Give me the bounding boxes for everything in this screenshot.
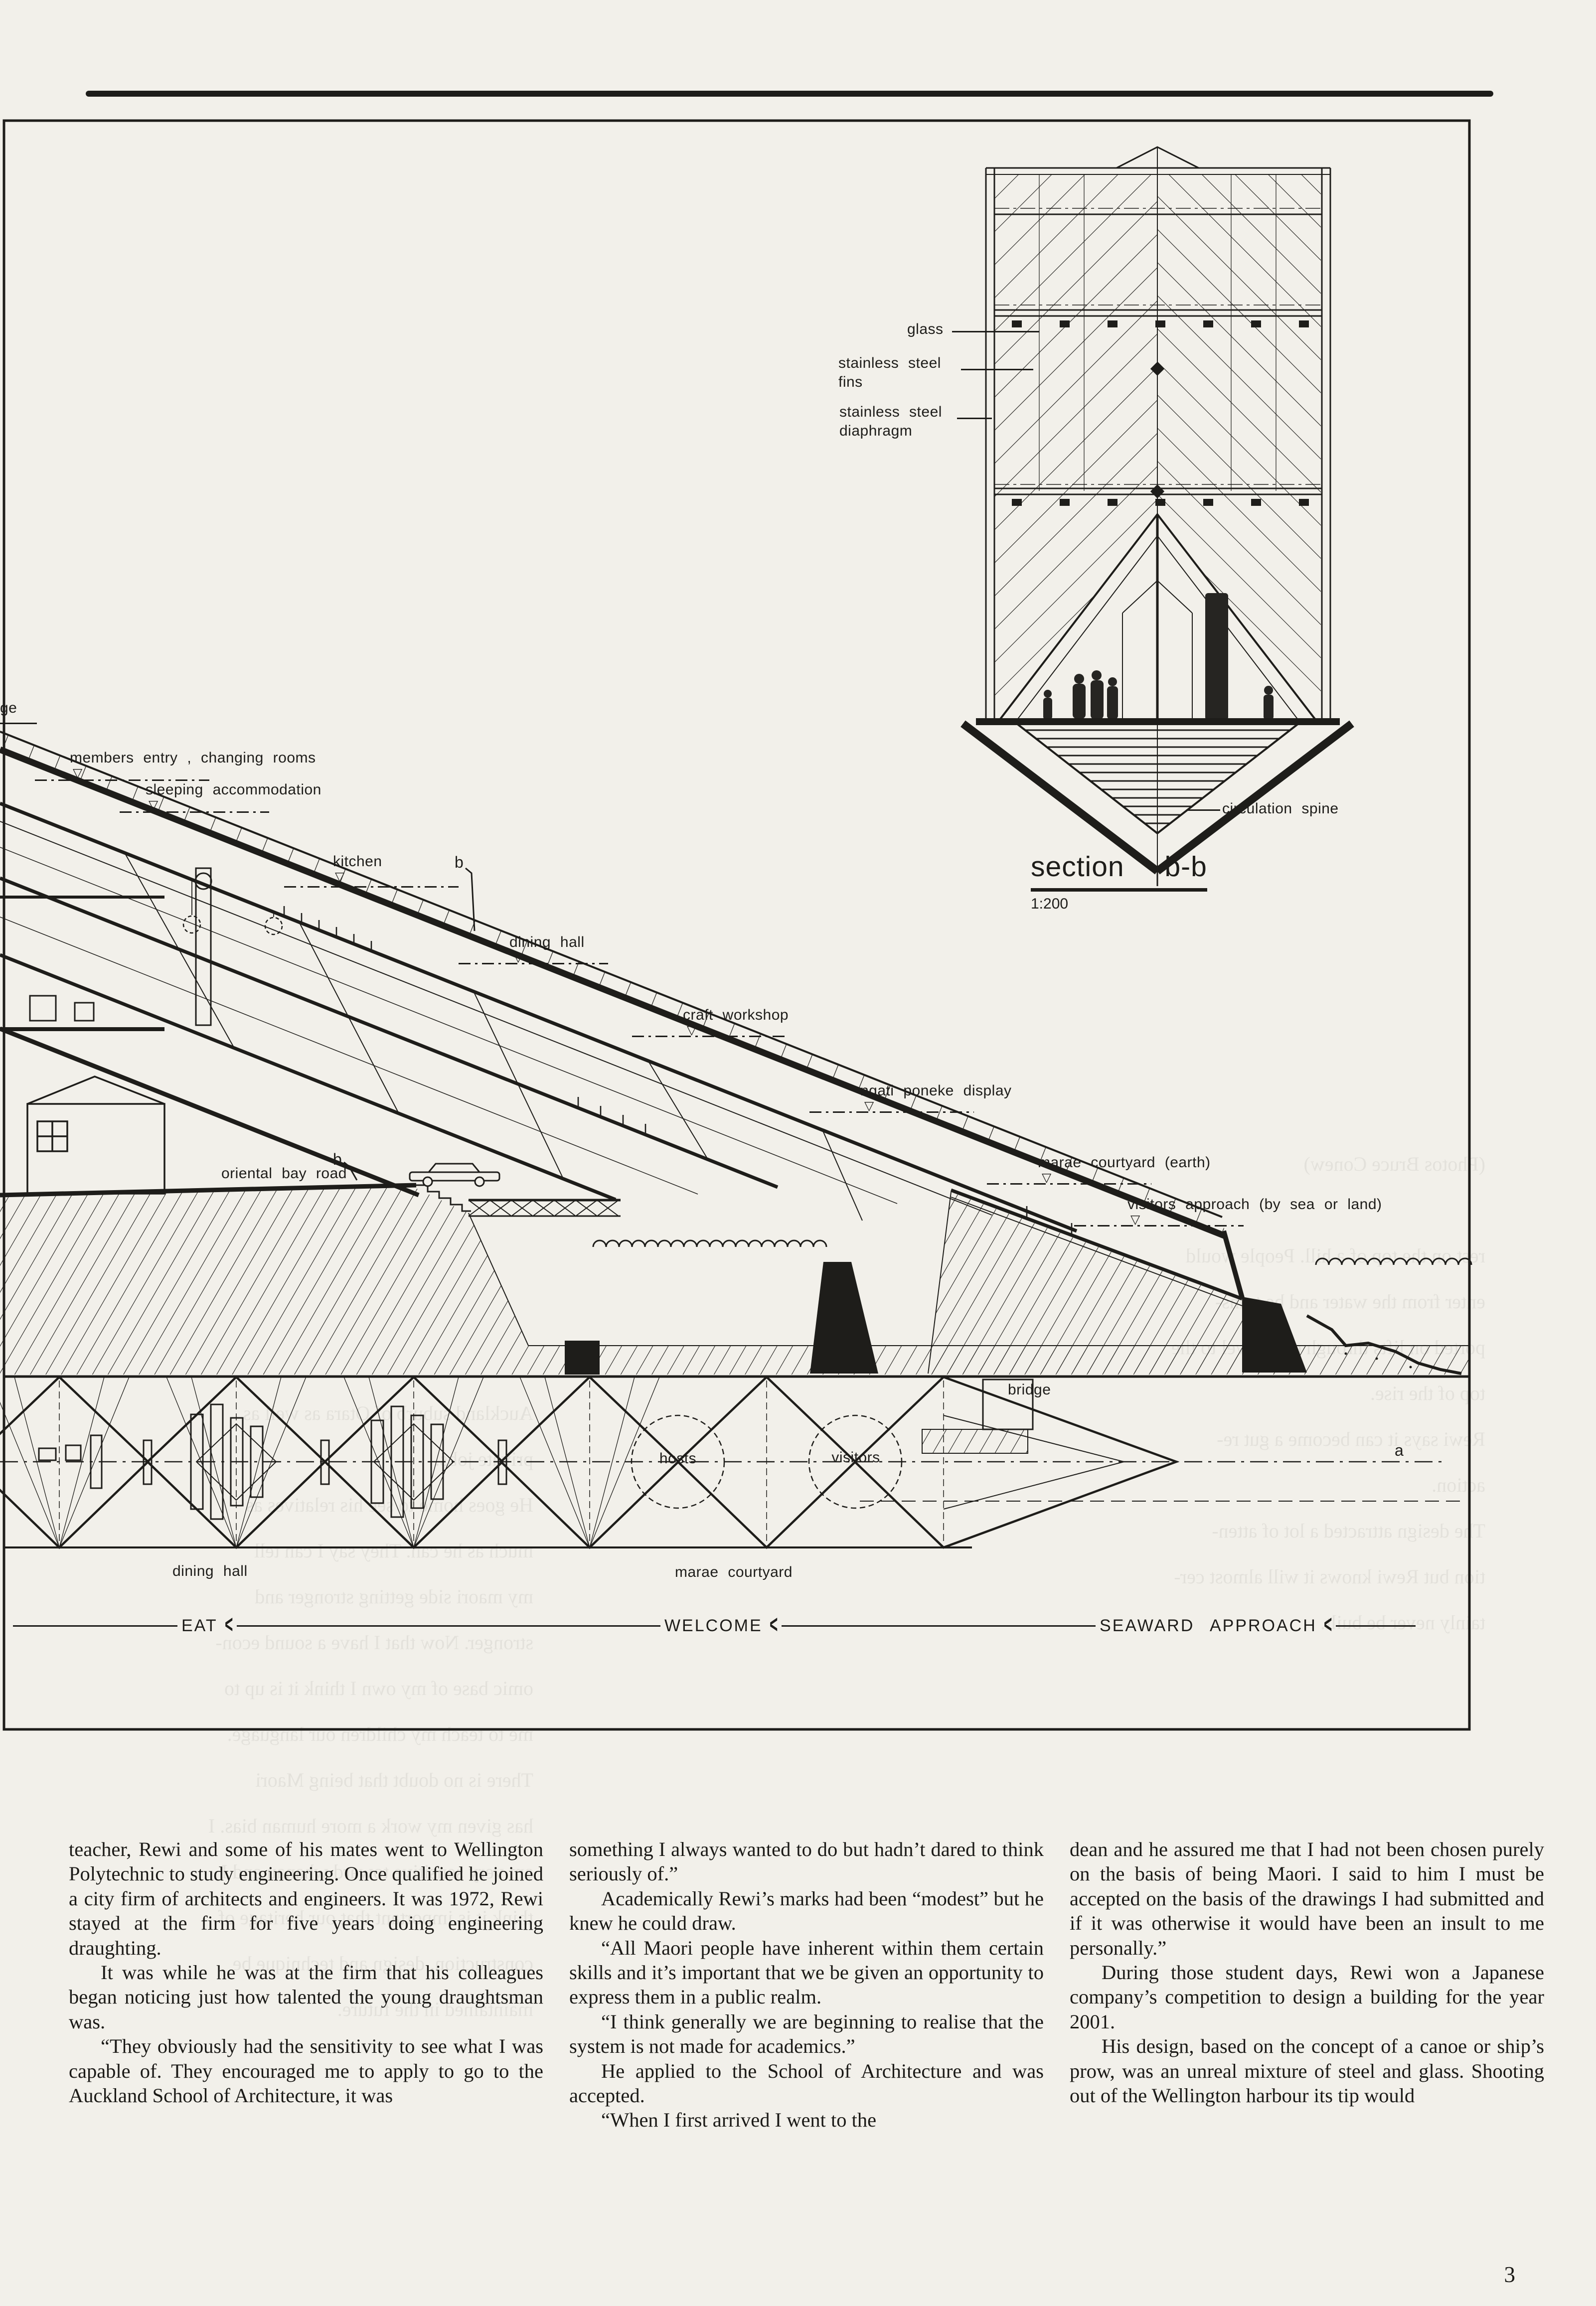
label-marae-courtyard-earth: marae courtyard (earth) <box>1038 1154 1211 1171</box>
label-stainless-steel-fins: stainless steel <box>838 355 941 372</box>
datum-triangle-icon: ▽ <box>1130 1213 1140 1226</box>
datum-line <box>284 886 459 888</box>
paragraph: “All Maori people have inherent within t… <box>569 1936 1044 2009</box>
datum-line <box>459 963 608 964</box>
leader-line <box>961 369 1033 370</box>
arrow-line <box>237 1625 660 1627</box>
datum-triangle-icon: ▽ <box>687 1024 696 1036</box>
marker-a: a <box>1395 1441 1404 1460</box>
section-bb-scale: 1:200 <box>1031 896 1207 913</box>
paragraph: something I always wanted to do but hadn… <box>569 1837 1044 1886</box>
label-stainless-steel-diaphragm: diaphragm <box>839 423 912 440</box>
datum-triangle-icon: ▽ <box>149 798 158 811</box>
page-number: 3 <box>1475 2262 1515 2288</box>
label-ngati-poneke-display: ngati poneke display <box>860 1082 1012 1099</box>
label-circulation-spine: circulation spine <box>1222 800 1339 817</box>
paragraph: “I think generally we are beginning to r… <box>569 2009 1044 2059</box>
bleed-through-text: (Photos Bruce Conew) rest on the top of … <box>1067 1141 1485 1646</box>
leader-line <box>957 418 992 419</box>
datum-triangle-icon: ▽ <box>513 951 523 963</box>
label-members-entry: members entry , changing rooms <box>70 750 316 767</box>
section-bb-title-text: section b-b <box>1031 850 1207 892</box>
paragraph: teacher, Rewi and some of his mates went… <box>69 1837 543 1960</box>
arrow-line <box>1336 1625 1416 1627</box>
approach-arrows: EAT < WELCOME < SEAWARD APPROACH < <box>13 1615 1425 1637</box>
section-bb-title: section b-b 1:200 <box>1031 850 1207 913</box>
label-dining-hall-section: dining hall <box>509 934 585 951</box>
datum-line <box>809 1111 974 1113</box>
arrow-line <box>782 1625 1096 1627</box>
label-visitors-approach: visitors approach (by sea or land) <box>1127 1196 1382 1213</box>
left-arrowhead-icon: < <box>225 1611 234 1639</box>
marker-b-lower: b <box>333 1150 342 1169</box>
datum-line <box>120 811 269 813</box>
datum-triangle-icon: ▽ <box>335 870 344 883</box>
leader-line <box>0 723 37 724</box>
page-frame <box>4 94 1490 1729</box>
paragraph: dean and he assured me that I had not be… <box>1070 1837 1544 1960</box>
magazine-page: (Photos Bruce Conew) rest on the top of … <box>0 0 1596 2306</box>
marker-b-upper: b <box>455 853 464 872</box>
label-dining-hall-plan: dining hall <box>172 1563 248 1580</box>
label-stainless-steel-fins: fins <box>838 374 863 391</box>
paragraph: Academically Rewi’s marks had been “mode… <box>569 1886 1044 1936</box>
paragraph: “They obviously had the sensitivity to s… <box>69 2034 543 2108</box>
label-hosts: hosts <box>631 1450 725 1467</box>
arrow-label-welcome: WELCOME <box>660 1616 767 1636</box>
label-marae-courtyard-plan: marae courtyard <box>675 1564 793 1581</box>
paragraph: His design, based on the concept of a ca… <box>1070 2034 1544 2108</box>
datum-line <box>987 1183 1151 1185</box>
label-level-partial: ge <box>0 700 17 717</box>
arrow-label-eat: EAT <box>177 1616 222 1636</box>
label-glass: glass <box>907 321 944 338</box>
long-section-drawing <box>0 732 1471 1377</box>
datum-line <box>1074 1225 1244 1227</box>
datum-triangle-icon: ▽ <box>73 767 82 779</box>
plan-drawing <box>0 1377 1465 1547</box>
left-arrowhead-icon: < <box>1324 1611 1333 1639</box>
leader-line <box>952 331 1039 332</box>
datum-line <box>35 779 209 781</box>
datum-triangle-icon: ▽ <box>864 1099 874 1112</box>
label-stainless-steel-diaphragm: stainless steel <box>839 404 942 421</box>
datum-line <box>632 1036 787 1037</box>
arrow-label-seaward-approach: SEAWARD APPROACH <box>1096 1616 1321 1636</box>
label-visitors: visitors <box>808 1449 903 1466</box>
label-sleeping-accommodation: sleeping accommodation <box>146 781 321 798</box>
left-arrowhead-icon: < <box>770 1611 779 1639</box>
section-bb-drawing <box>963 147 1352 886</box>
label-craft-workshop: craft workshop <box>683 1007 789 1024</box>
article-column-2: something I always wanted to do but hadn… <box>569 1837 1044 2133</box>
article-column-1: teacher, Rewi and some of his mates went… <box>69 1837 543 2108</box>
label-oriental-bay-road: oriental bay road <box>221 1165 347 1182</box>
leader-line <box>1186 809 1220 811</box>
paragraph: It was while he was at the firm that his… <box>69 1960 543 2034</box>
label-kitchen: kitchen <box>333 853 382 870</box>
paragraph: He applied to the School of Architecture… <box>569 2059 1044 2108</box>
arrow-line <box>13 1625 177 1627</box>
datum-triangle-icon: ▽ <box>1042 1171 1051 1184</box>
article-column-3: dean and he assured me that I had not be… <box>1070 1837 1544 2108</box>
paragraph: “When I first arrived I went to the <box>569 2108 1044 2132</box>
paragraph: During those student days, Rewi won a Ja… <box>1070 1960 1544 2034</box>
label-bridge: bridge <box>1008 1382 1051 1398</box>
